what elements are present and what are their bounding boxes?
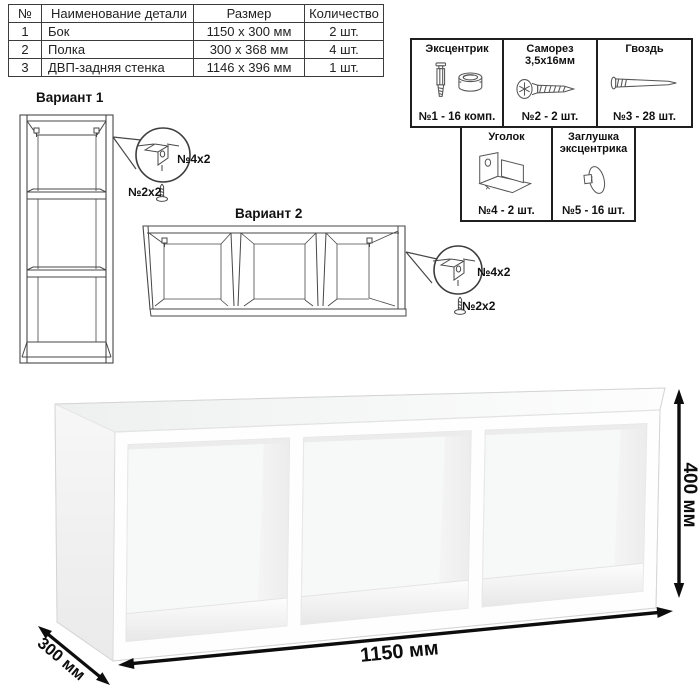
- parts-table: № Наименование детали Размер Количество …: [8, 4, 384, 77]
- corner-bracket-icon: [467, 149, 547, 199]
- callout2-screw-qty-label: №2х2: [462, 299, 496, 313]
- eccentric-cam-icon: [414, 62, 500, 104]
- row-qty: 2 шт.: [305, 23, 384, 41]
- callout2-bracket-qty-label: №4х2: [477, 265, 511, 279]
- hardware-count: №5 - 16 шт.: [562, 205, 625, 220]
- hardware-cell-eccentric: Эксцентрик №1 - 16 комп.: [410, 38, 504, 128]
- hardware-name: Эксцентрик: [424, 40, 489, 55]
- table-row: 2 Полка 300 x 368 мм 4 шт.: [9, 41, 384, 59]
- table-row: 1 Бок 1150 x 300 мм 2 шт.: [9, 23, 384, 41]
- variant1-label: Вариант 1: [36, 90, 104, 105]
- row-qty: 4 шт.: [305, 41, 384, 59]
- height-dimension-label: 400 мм: [679, 462, 700, 527]
- header-size: Размер: [194, 5, 305, 23]
- header-qty: Количество: [305, 5, 384, 23]
- row-name: Бок: [42, 23, 194, 41]
- assembly-instruction-sheet: №4х2 №2х2 №4х2 №2х2 Вариант 1 Вариант 2: [0, 0, 700, 690]
- table-row: 3 ДВП-задняя стенка 1146 x 396 мм 1 шт.: [9, 59, 384, 77]
- hardware-cell-bracket: Уголок №4 - 2 шт.: [460, 126, 553, 222]
- callout1-bracket-qty-label: №4х2: [177, 152, 211, 166]
- row-num: 1: [9, 23, 42, 41]
- row-qty: 1 шт.: [305, 59, 384, 77]
- nail-icon: [602, 68, 688, 98]
- row-size: 1146 x 396 мм: [194, 59, 305, 77]
- hardware-cell-nail: Гвоздь №3 - 28 шт.: [596, 38, 693, 128]
- callout1: №4х2 №2х2: [113, 128, 211, 201]
- hardware-count: №2 - 2 шт.: [522, 111, 578, 126]
- parts-table-header-row: № Наименование детали Размер Количество: [9, 5, 384, 23]
- hardware-name: Заглушка эксцентрика: [553, 128, 634, 156]
- row-name: Полка: [42, 41, 194, 59]
- callout2: №4х2 №2х2: [406, 246, 511, 314]
- cam-cap-icon: [564, 159, 624, 201]
- hardware-name: Саморез 3,5х16мм: [504, 40, 596, 68]
- hardware-name: Уголок: [487, 128, 525, 143]
- row-name: ДВП-задняя стенка: [42, 59, 194, 77]
- row-size: 1150 x 300 мм: [194, 23, 305, 41]
- header-num: №: [9, 5, 42, 23]
- callout1-screw-qty-label: №2х2: [128, 185, 162, 199]
- variant2-label: Вариант 2: [235, 206, 302, 221]
- hardware-count: №4 - 2 шт.: [478, 205, 534, 220]
- hardware-count: №1 - 16 комп.: [419, 111, 496, 126]
- variant2-drawing: [143, 226, 406, 316]
- screw-icon: [507, 72, 593, 106]
- row-num: 3: [9, 59, 42, 77]
- header-name: Наименование детали: [42, 5, 194, 23]
- row-size: 300 x 368 мм: [194, 41, 305, 59]
- row-num: 2: [9, 41, 42, 59]
- hardware-cell-screw: Саморез 3,5х16мм №2 - 2 шт.: [502, 38, 598, 128]
- dimension-height: 400 мм: [674, 389, 700, 598]
- hardware-cell-cap: Заглушка эксцентрика №5 - 16 шт.: [551, 126, 636, 222]
- hardware-name: Гвоздь: [624, 40, 664, 55]
- variant1-drawing: [20, 115, 113, 363]
- hardware-count: №3 - 28 шт.: [613, 111, 676, 126]
